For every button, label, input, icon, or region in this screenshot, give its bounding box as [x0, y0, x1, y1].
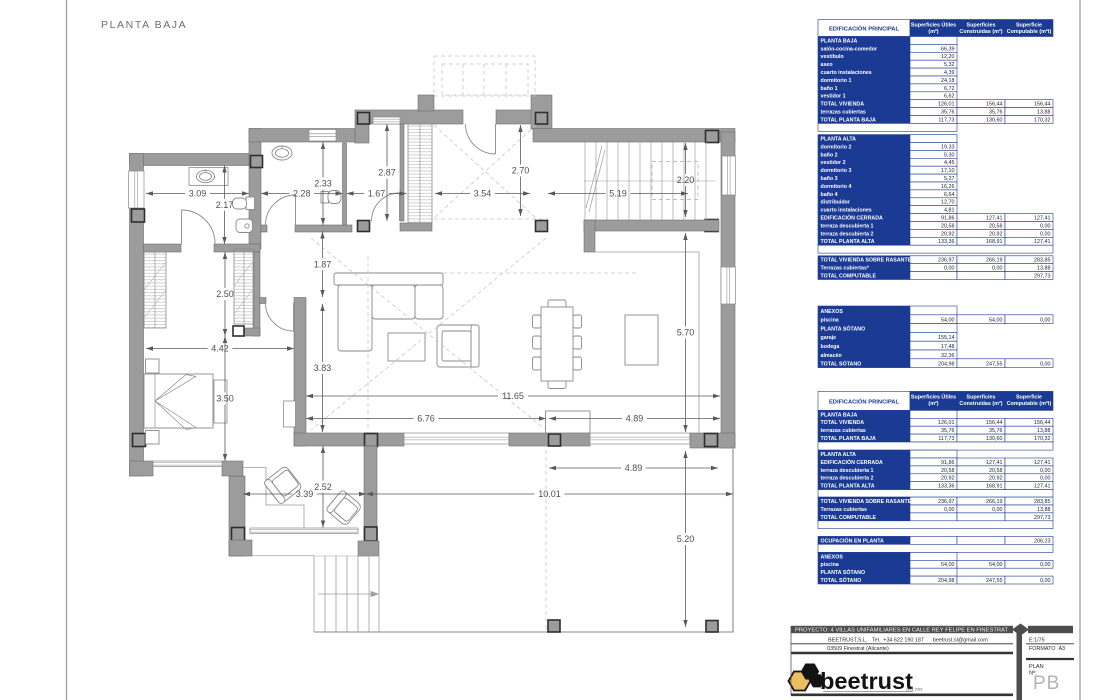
svg-text:Construidas (m²): Construidas (m²) — [959, 401, 1002, 407]
svg-text:156,44: 156,44 — [1034, 102, 1051, 108]
svg-text:127,41: 127,41 — [1034, 216, 1051, 222]
svg-text:PLANTA ALTA: PLANTA ALTA — [821, 452, 857, 458]
svg-text:garaje: garaje — [821, 335, 837, 341]
svg-text:168,91: 168,91 — [986, 484, 1003, 490]
svg-text:4.42: 4.42 — [211, 344, 229, 354]
svg-text:vestidor 1: vestidor 1 — [821, 94, 846, 100]
svg-text:0,00: 0,00 — [1040, 562, 1051, 568]
svg-text:TOTAL VIVIENDA: TOTAL VIVIENDA — [821, 420, 865, 426]
svg-text:0,00: 0,00 — [944, 507, 955, 513]
svg-text:13,88: 13,88 — [1037, 266, 1051, 272]
svg-text:dormitorio 4: dormitorio 4 — [821, 184, 852, 190]
svg-text:terrazas cubiertas: terrazas cubiertas — [821, 110, 866, 116]
svg-text:5,30: 5,30 — [944, 152, 955, 158]
svg-text:133,36: 133,36 — [938, 484, 955, 490]
svg-text:ANEXOS: ANEXOS — [821, 554, 844, 560]
svg-text:130,60: 130,60 — [986, 117, 1003, 123]
svg-text:283,85: 283,85 — [1034, 258, 1051, 264]
svg-text:204,98: 204,98 — [938, 578, 955, 584]
svg-text:155,14: 155,14 — [938, 335, 955, 341]
svg-text:terraza descubierta 2: terraza descubierta 2 — [821, 231, 874, 237]
svg-text:PLANTA BAJA: PLANTA BAJA — [101, 19, 187, 31]
svg-text:54,00: 54,00 — [989, 562, 1003, 568]
svg-text:terraza descubierta 2: terraza descubierta 2 — [821, 476, 874, 482]
svg-text:ANEXOS: ANEXOS — [821, 309, 844, 315]
svg-text:vestíbulo: vestíbulo — [821, 54, 845, 60]
svg-text:0,00: 0,00 — [1040, 318, 1051, 324]
svg-text:24,18: 24,18 — [941, 78, 955, 84]
svg-text:3.50: 3.50 — [216, 394, 234, 404]
svg-text:133,36: 133,36 — [938, 239, 955, 245]
svg-text:EDIFICACIÓN CERRADA: EDIFICACIÓN CERRADA — [821, 214, 884, 222]
svg-text:54,00: 54,00 — [941, 562, 955, 568]
svg-text:20,58: 20,58 — [989, 223, 1003, 229]
svg-text:Computable (m²t): Computable (m²t) — [1007, 29, 1052, 35]
svg-text:12,20: 12,20 — [941, 54, 955, 60]
svg-text:4.89: 4.89 — [626, 414, 644, 424]
svg-text:204,98: 204,98 — [938, 362, 955, 368]
svg-text:PLANTA BAJA: PLANTA BAJA — [821, 412, 858, 418]
svg-text:E:1/75: E:1/75 — [1029, 638, 1045, 644]
svg-text:(m²): (m²) — [928, 401, 938, 407]
svg-text:16,26: 16,26 — [941, 184, 955, 190]
svg-text:247,55: 247,55 — [986, 578, 1003, 584]
svg-text:20,58: 20,58 — [941, 468, 955, 474]
svg-text:Superficies Útiles: Superficies Útiles — [911, 393, 956, 400]
svg-text:297,73: 297,73 — [1034, 274, 1051, 280]
svg-text:5,32: 5,32 — [944, 62, 955, 68]
svg-text:54,00: 54,00 — [989, 318, 1003, 324]
svg-text:cuarto instalaciones: cuarto instalaciones — [821, 70, 872, 76]
svg-text:20,92: 20,92 — [941, 476, 955, 482]
svg-text:4,45: 4,45 — [944, 160, 955, 166]
svg-text:0,00: 0,00 — [1040, 362, 1051, 368]
svg-text:2.87: 2.87 — [378, 168, 396, 178]
svg-text:PLANTA SÓTANO: PLANTA SÓTANO — [821, 324, 866, 332]
svg-text:Construidas (m²): Construidas (m²) — [959, 29, 1002, 35]
svg-text:5.20: 5.20 — [677, 534, 695, 544]
svg-text:Terrazas cubiertas: Terrazas cubiertas — [821, 507, 867, 513]
svg-text:12,70: 12,70 — [941, 200, 955, 206]
svg-text:4.89: 4.89 — [625, 463, 643, 473]
svg-text:TOTAL PLANTA ALTA: TOTAL PLANTA ALTA — [821, 484, 875, 490]
svg-text:almacén: almacén — [821, 353, 842, 359]
svg-text:0,00: 0,00 — [992, 266, 1003, 272]
svg-text:PLANTA SÓTANO: PLANTA SÓTANO — [821, 568, 866, 576]
svg-text:35,76: 35,76 — [989, 428, 1003, 434]
svg-text:236,97: 236,97 — [938, 499, 955, 505]
svg-text:11.65: 11.65 — [502, 391, 524, 401]
svg-text:terraza descubierta 1: terraza descubierta 1 — [821, 468, 874, 474]
svg-text:TOTAL VIVIENDA SOBRE RASANTE: TOTAL VIVIENDA SOBRE RASANTE — [821, 499, 912, 505]
svg-text:35,76: 35,76 — [941, 428, 955, 434]
svg-text:20,92: 20,92 — [989, 476, 1003, 482]
svg-text:piscina: piscina — [821, 318, 839, 324]
svg-text:0,00: 0,00 — [1040, 231, 1051, 237]
svg-text:salón-cocina-comedor: salón-cocina-comedor — [821, 46, 878, 52]
svg-text:13,88: 13,88 — [1037, 428, 1051, 434]
svg-text:baño 1: baño 1 — [821, 86, 838, 92]
svg-text:EDIFICACIÓN CERRADA: EDIFICACIÓN CERRADA — [821, 458, 884, 466]
svg-text:PB: PB — [1033, 673, 1060, 694]
svg-text:20,92: 20,92 — [941, 231, 955, 237]
svg-text:19,33: 19,33 — [941, 144, 955, 150]
svg-text:Superficie: Superficie — [1016, 394, 1042, 400]
svg-text:117,73: 117,73 — [938, 117, 954, 123]
svg-text:126,01: 126,01 — [938, 102, 955, 108]
svg-text:cuarto instalaciones: cuarto instalaciones — [821, 208, 872, 214]
svg-text:0,00: 0,00 — [1040, 476, 1051, 482]
svg-text:17,10: 17,10 — [941, 168, 955, 174]
svg-text:baño 4: baño 4 — [821, 192, 838, 198]
svg-text:since 2015: since 2015 — [906, 688, 923, 692]
svg-text:2.50: 2.50 — [216, 289, 234, 299]
svg-text:TOTAL COMPUTABLE: TOTAL COMPUTABLE — [821, 515, 877, 521]
svg-text:3.83: 3.83 — [314, 363, 332, 373]
svg-text:126,01: 126,01 — [938, 420, 955, 426]
svg-text:5.19: 5.19 — [609, 189, 627, 199]
svg-text:266,19: 266,19 — [986, 499, 1003, 505]
svg-text:vestidor 2: vestidor 2 — [821, 160, 846, 166]
svg-text:6,64: 6,64 — [944, 192, 955, 198]
svg-text:206,23: 206,23 — [1034, 538, 1051, 544]
svg-text:distribuidor: distribuidor — [821, 200, 850, 206]
svg-text:beetrust: beetrust — [820, 668, 913, 694]
svg-text:piscina: piscina — [821, 562, 839, 568]
svg-text:266,19: 266,19 — [986, 258, 1003, 264]
svg-text:TOTAL PLANTA BAJA: TOTAL PLANTA BAJA — [821, 436, 876, 442]
svg-text:1.67: 1.67 — [368, 189, 386, 199]
svg-text:3.39: 3.39 — [296, 489, 314, 499]
svg-text:13,88: 13,88 — [1037, 110, 1051, 116]
svg-text:283,85: 283,85 — [1034, 499, 1051, 505]
svg-text:baño 3: baño 3 — [821, 176, 838, 182]
svg-text:127,41: 127,41 — [1034, 484, 1051, 490]
svg-text:4,81: 4,81 — [944, 208, 955, 214]
svg-text:0,00: 0,00 — [1040, 578, 1051, 584]
svg-text:03509 Finestrat (Alicante): 03509 Finestrat (Alicante) — [827, 646, 889, 652]
svg-text:247,55: 247,55 — [986, 362, 1003, 368]
svg-text:FORMATO A3: FORMATO A3 — [1029, 646, 1065, 652]
svg-text:3.54: 3.54 — [474, 189, 492, 199]
svg-text:TOTAL SÓTANO: TOTAL SÓTANO — [821, 360, 862, 368]
svg-text:TOTAL SÓTANO: TOTAL SÓTANO — [821, 576, 862, 584]
svg-text:156,44: 156,44 — [986, 102, 1003, 108]
svg-text:PLAN: PLAN — [1029, 664, 1044, 670]
svg-text:170,32: 170,32 — [1034, 117, 1051, 123]
svg-text:168,91: 168,91 — [986, 239, 1003, 245]
svg-text:156,44: 156,44 — [1034, 420, 1051, 426]
svg-text:Computable (m²t): Computable (m²t) — [1007, 401, 1052, 407]
svg-text:OCUPACIÓN EN PLANTA: OCUPACIÓN EN PLANTA — [821, 536, 885, 544]
svg-text:5,27: 5,27 — [944, 176, 955, 182]
svg-text:297,73: 297,73 — [1034, 515, 1051, 521]
svg-text:35,76: 35,76 — [941, 110, 955, 116]
svg-text:4,39: 4,39 — [944, 70, 955, 76]
svg-text:TOTAL VIVIENDA: TOTAL VIVIENDA — [821, 102, 865, 108]
svg-text:10.01: 10.01 — [538, 489, 561, 499]
svg-text:20,58: 20,58 — [989, 468, 1003, 474]
svg-text:baño 2: baño 2 — [821, 152, 838, 158]
svg-text:2.28: 2.28 — [293, 189, 311, 199]
svg-text:TOTAL PLANTA ALTA: TOTAL PLANTA ALTA — [821, 239, 875, 245]
svg-text:0,00: 0,00 — [944, 266, 955, 272]
svg-text:aseo: aseo — [821, 62, 834, 68]
svg-text:127,41: 127,41 — [986, 216, 1003, 222]
svg-text:32,36: 32,36 — [941, 353, 955, 359]
svg-text:6,72: 6,72 — [944, 86, 955, 92]
svg-text:EDIFICACIÓN PRINCIPAL: EDIFICACIÓN PRINCIPAL — [829, 397, 900, 405]
svg-text:127,41: 127,41 — [1034, 460, 1051, 466]
svg-text:20,92: 20,92 — [989, 231, 1003, 237]
svg-text:PLANTA BAJA: PLANTA BAJA — [821, 38, 858, 44]
svg-text:0,00: 0,00 — [992, 507, 1003, 513]
svg-text:20,58: 20,58 — [941, 223, 955, 229]
svg-text:91,86: 91,86 — [941, 460, 955, 466]
svg-text:170,32: 170,32 — [1034, 436, 1051, 442]
svg-text:127,41: 127,41 — [986, 460, 1003, 466]
svg-text:156,44: 156,44 — [986, 420, 1003, 426]
svg-text:2.70: 2.70 — [512, 166, 530, 176]
svg-text:5.70: 5.70 — [677, 328, 695, 338]
svg-text:2.33: 2.33 — [314, 179, 332, 189]
svg-text:PLANTA ALTA: PLANTA ALTA — [821, 137, 857, 143]
svg-text:dormitorio 2: dormitorio 2 — [821, 144, 852, 150]
svg-text:13,88: 13,88 — [1037, 507, 1051, 513]
svg-text:236,97: 236,97 — [938, 258, 955, 264]
svg-text:2.17: 2.17 — [216, 200, 234, 210]
svg-text:0,00: 0,00 — [1040, 468, 1051, 474]
svg-text:Terrazas cubiertas*: Terrazas cubiertas* — [821, 266, 870, 272]
svg-text:Superficie: Superficie — [1016, 23, 1042, 29]
svg-text:0,00: 0,00 — [1040, 223, 1051, 229]
svg-text:91,86: 91,86 — [941, 216, 955, 222]
svg-text:terraza descubierta 1: terraza descubierta 1 — [821, 223, 874, 229]
svg-text:117,73: 117,73 — [938, 436, 954, 442]
svg-text:Superficies: Superficies — [966, 394, 995, 400]
svg-text:6,62: 6,62 — [944, 94, 955, 100]
svg-text:17,48: 17,48 — [941, 344, 955, 350]
svg-text:1.87: 1.87 — [314, 259, 332, 269]
svg-text:terrazas cubiertas: terrazas cubiertas — [821, 428, 866, 434]
svg-text:TOTAL PLANTA BAJA: TOTAL PLANTA BAJA — [821, 117, 876, 123]
svg-text:2.52: 2.52 — [314, 482, 332, 492]
svg-text:6.76: 6.76 — [417, 414, 435, 424]
svg-text:dormitorio 3: dormitorio 3 — [821, 168, 852, 174]
svg-text:TOTAL VIVIENDA SOBRE RASANTE: TOTAL VIVIENDA SOBRE RASANTE — [821, 258, 912, 264]
svg-text:dormitorio 1: dormitorio 1 — [821, 78, 852, 84]
svg-text:3.09: 3.09 — [189, 189, 207, 199]
svg-text:BEETRUST,S.L. Tel. +34 622: BEETRUST,S.L. Tel. +34 622 190 187 beetr… — [828, 638, 988, 644]
svg-text:2.20: 2.20 — [677, 175, 695, 185]
svg-text:(m²): (m²) — [928, 29, 938, 35]
svg-text:EDIFICACIÓN PRINCIPAL: EDIFICACIÓN PRINCIPAL — [829, 25, 900, 33]
svg-text:Superficies: Superficies — [966, 23, 995, 29]
svg-text:130,60: 130,60 — [986, 436, 1003, 442]
svg-text:PROYECTO: 4 VILLAS UNIFAMIL: PROYECTO: 4 VILLAS UNIFAMILIARES EN CALL… — [795, 628, 1009, 634]
svg-text:35,76: 35,76 — [989, 110, 1003, 116]
svg-text:127,41: 127,41 — [1034, 239, 1051, 245]
svg-text:54,00: 54,00 — [941, 318, 955, 324]
svg-text:TOTAL COMPUTABLE: TOTAL COMPUTABLE — [821, 274, 877, 280]
svg-text:Superficies Útiles: Superficies Útiles — [911, 22, 956, 29]
svg-text:66,39: 66,39 — [941, 46, 955, 52]
svg-text:bodega: bodega — [821, 344, 840, 350]
